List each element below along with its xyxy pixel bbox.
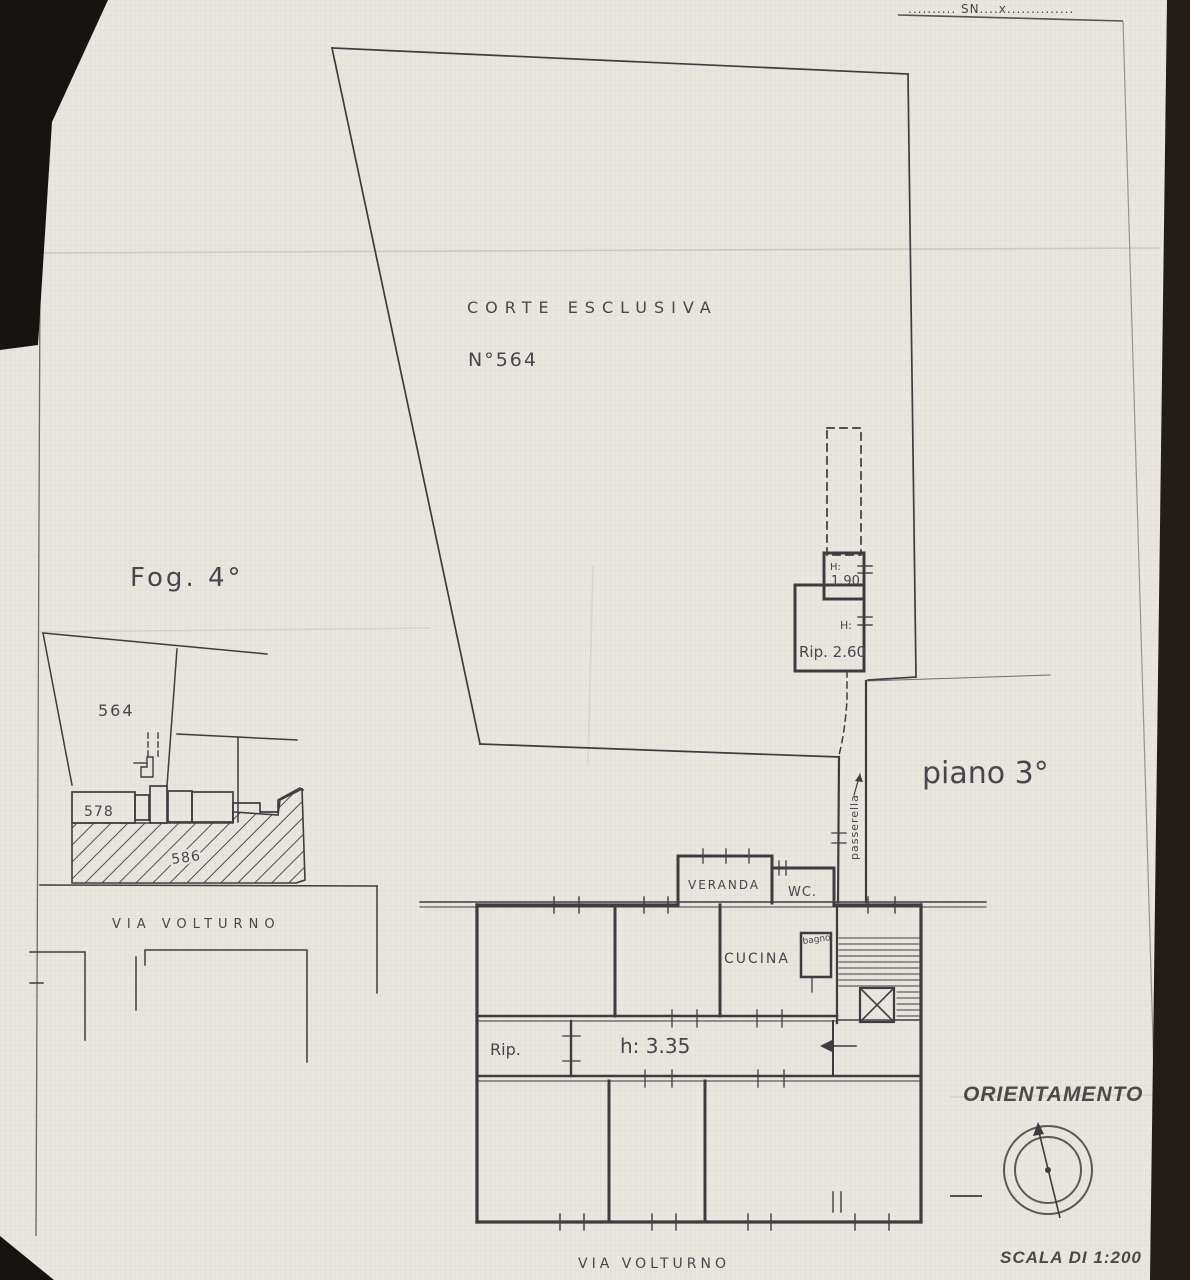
cucina-label: CUCINA [724, 951, 790, 967]
veranda-label: VERANDA [688, 878, 760, 892]
rip-room-label: Rip. 2.60 [799, 643, 866, 661]
h190-label: H: [830, 562, 841, 573]
h190-value: 1.90 [831, 574, 860, 589]
top-right-note: .......... SN....x.............. [908, 2, 1074, 16]
orientation-title: ORIENTAMENTO [963, 1083, 1143, 1106]
courtyard-parcel-number: N°564 [468, 349, 538, 371]
scale-label: SCALA DI 1:200 [1000, 1248, 1142, 1267]
rip-h-label: H: [840, 619, 852, 632]
ceiling-height-label: h: 3.35 [620, 1034, 690, 1058]
floor-plan-drawing: .......... SN....x.............. CORTE E… [0, 0, 1190, 1280]
street-label-bottom: VIA VOLTURNO [578, 1256, 730, 1272]
parcel-564-label: 564 [98, 701, 135, 720]
walkway-label: passerella [848, 794, 861, 860]
courtyard-label: CORTE ESCLUSIVA [467, 298, 718, 317]
street-label-left: VIA VOLTURNO [112, 917, 281, 932]
wc-label: WC. [788, 885, 817, 900]
rip-label: Rip. [490, 1040, 521, 1059]
scanned-floor-plan-sheet: .......... SN....x.............. CORTE E… [0, 0, 1190, 1280]
floor-label: piano 3° [922, 756, 1049, 791]
map-title: Fog. 4° [130, 563, 244, 593]
parcel-578-label: 578 [84, 804, 114, 820]
